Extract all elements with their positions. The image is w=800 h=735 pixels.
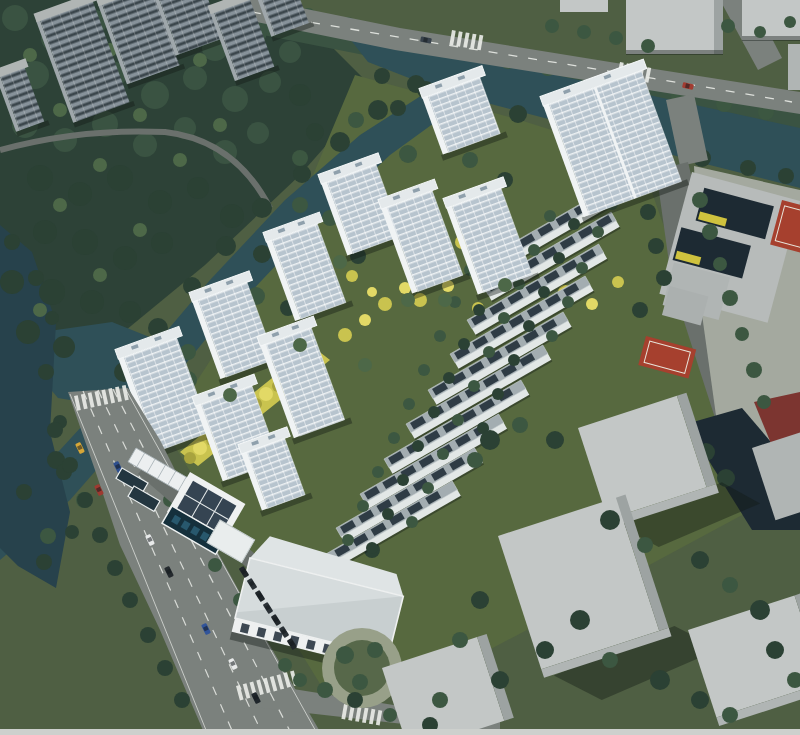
tree (750, 600, 770, 620)
tree (778, 168, 794, 184)
tree (388, 432, 400, 444)
tree (546, 330, 558, 342)
tree (509, 105, 527, 123)
tree (38, 364, 54, 380)
block (626, 0, 714, 54)
tree (157, 660, 173, 676)
tree (367, 287, 377, 297)
tree (213, 118, 227, 132)
tree (252, 198, 272, 218)
tree (766, 641, 784, 659)
tree (538, 286, 550, 298)
tree (372, 466, 384, 478)
tree (412, 440, 424, 452)
tree (722, 290, 738, 306)
tree (546, 431, 564, 449)
tree (141, 81, 169, 109)
tree (702, 224, 718, 240)
tree (220, 204, 244, 228)
tree (366, 542, 378, 554)
tree (512, 417, 528, 433)
tree (330, 132, 350, 152)
tree (498, 312, 510, 324)
tree (418, 364, 430, 376)
tree (691, 691, 709, 709)
tree (397, 474, 409, 486)
tree (317, 682, 333, 698)
tree (33, 303, 47, 317)
tree (523, 320, 535, 332)
tree (36, 554, 52, 570)
tree (93, 158, 107, 172)
tree (378, 297, 392, 311)
tree (637, 537, 653, 553)
tree (16, 484, 32, 500)
block (788, 44, 800, 90)
tree (184, 452, 196, 464)
tree (757, 395, 771, 409)
tree (592, 226, 604, 238)
tree (740, 160, 756, 176)
tree (53, 336, 75, 358)
block (0, 729, 800, 735)
tree (68, 182, 92, 206)
tree (632, 302, 648, 318)
tree (600, 510, 620, 530)
tree (292, 150, 308, 166)
tree (359, 314, 371, 326)
tree (27, 165, 53, 191)
tree (346, 270, 358, 282)
tree (576, 262, 588, 274)
tree (640, 204, 656, 220)
tree (39, 279, 65, 305)
tree (492, 388, 504, 400)
tree (428, 406, 440, 418)
tree (278, 658, 292, 672)
tree (437, 448, 449, 460)
tree (602, 652, 618, 668)
tree (368, 100, 388, 120)
rendering-canvas (0, 0, 800, 735)
tree (53, 103, 67, 117)
tree (193, 53, 207, 67)
tree (28, 270, 44, 286)
tree (406, 516, 418, 528)
tree (348, 112, 364, 128)
tree (279, 41, 301, 63)
tree (480, 430, 500, 450)
tree (16, 320, 40, 344)
tree (133, 223, 147, 237)
tree (568, 218, 580, 230)
tree (401, 293, 415, 307)
tree (338, 328, 352, 342)
tree (133, 108, 147, 122)
tree (577, 25, 591, 39)
tree (92, 527, 108, 543)
tree (293, 673, 307, 687)
aerial-rendering (0, 0, 800, 735)
tree (187, 177, 209, 199)
tree (80, 290, 104, 314)
tree (586, 298, 598, 310)
tree (148, 190, 172, 214)
tree (4, 234, 20, 250)
tree (2, 5, 28, 31)
tree (648, 238, 664, 254)
tree (491, 671, 509, 689)
tree (650, 670, 670, 690)
tree (289, 84, 311, 106)
tree (432, 692, 448, 708)
tree (62, 457, 78, 473)
tree (443, 372, 455, 384)
layer-bottom-strip (0, 729, 800, 735)
tree (692, 192, 708, 208)
tree (293, 165, 311, 183)
tree (352, 674, 368, 690)
tree (173, 153, 187, 167)
tree (754, 26, 766, 38)
tree (471, 591, 489, 609)
tree (293, 338, 307, 352)
tree (498, 278, 512, 292)
block (742, 36, 800, 41)
tree (468, 380, 480, 392)
tree (347, 692, 363, 708)
tree (292, 197, 308, 213)
tree (183, 66, 207, 90)
tree (382, 508, 394, 520)
tree (462, 152, 478, 168)
tree (216, 236, 236, 256)
tree (641, 39, 655, 53)
tree (47, 422, 63, 438)
tree (452, 632, 468, 648)
tree (122, 592, 138, 608)
tree (438, 293, 452, 307)
tree (721, 19, 735, 33)
tree (570, 610, 590, 630)
tree (53, 198, 67, 212)
tree (562, 296, 574, 308)
tree (422, 482, 434, 494)
tree (536, 641, 554, 659)
scene-layers (0, 0, 800, 735)
tree (77, 492, 93, 508)
tree (544, 210, 556, 222)
block (560, 0, 608, 12)
tree (612, 276, 624, 288)
tree (174, 692, 190, 708)
tree (656, 270, 672, 286)
tree (357, 500, 369, 512)
tree (107, 165, 133, 191)
tree (113, 246, 137, 270)
tree (0, 270, 24, 294)
tree (247, 122, 269, 144)
tree (72, 229, 98, 255)
tree (483, 346, 495, 358)
tree (40, 528, 56, 544)
tree (222, 86, 248, 112)
tree (107, 560, 123, 576)
tree (383, 708, 397, 722)
tree (390, 100, 406, 116)
block (626, 50, 723, 55)
tree (208, 558, 222, 572)
tree (735, 327, 749, 341)
tree (223, 388, 237, 402)
tree (45, 311, 59, 325)
tree (119, 301, 141, 323)
tree (336, 646, 354, 664)
tree (259, 387, 273, 401)
tree (253, 245, 271, 263)
tree (93, 268, 107, 282)
tree (358, 358, 372, 372)
tree (342, 534, 354, 546)
tree (452, 414, 464, 426)
tree (553, 252, 565, 264)
tree (65, 525, 79, 539)
tree (458, 338, 470, 350)
tree (399, 145, 417, 163)
tree (140, 627, 156, 643)
tree (784, 16, 796, 28)
tree (609, 31, 623, 45)
tree (545, 19, 559, 33)
tree (151, 232, 173, 254)
tree (306, 123, 324, 141)
tree (374, 68, 390, 84)
tree (367, 642, 383, 658)
tree (713, 257, 727, 271)
tree (33, 220, 57, 244)
tree (473, 304, 485, 316)
tree (691, 551, 709, 569)
tree (722, 707, 738, 723)
tree (722, 577, 738, 593)
tree (746, 362, 762, 378)
tree (333, 255, 347, 269)
car-glass (423, 37, 428, 42)
tree (508, 354, 520, 366)
tree (434, 330, 446, 342)
tree (528, 244, 540, 256)
tree (133, 133, 157, 157)
tree (403, 398, 415, 410)
tree (467, 452, 483, 468)
